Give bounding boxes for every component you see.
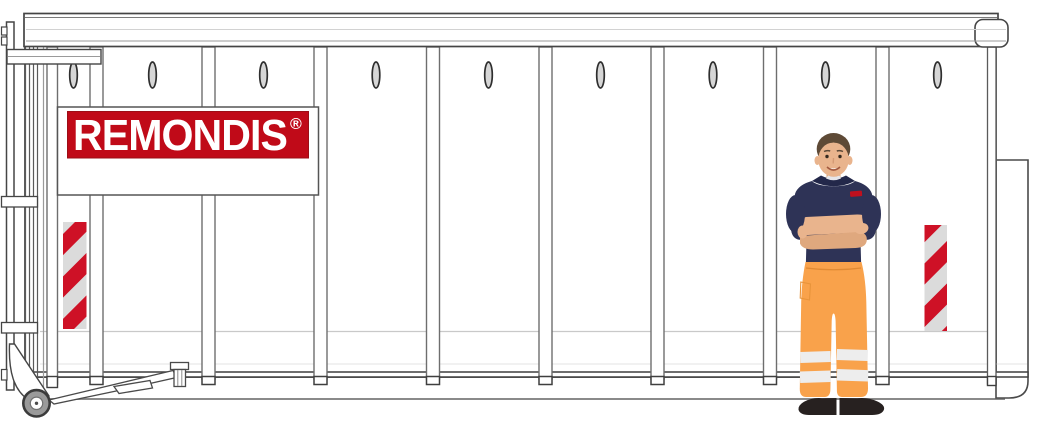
hook-bar-tab [2, 370, 8, 381]
corner-post-foot [47, 377, 58, 388]
wall-rib [651, 47, 664, 379]
reflective-stripe [837, 369, 869, 382]
vent-slot [934, 62, 942, 88]
vent-slot [822, 62, 830, 88]
worker-eye [825, 155, 828, 158]
remondis-logo-text: REMONDIS [73, 111, 287, 160]
wall-rib-foot [314, 377, 327, 385]
rear-door-box [996, 160, 1028, 398]
wall-rib-foot [651, 377, 664, 385]
reflective-stripe [837, 349, 868, 361]
hook-bar-tab [2, 27, 8, 35]
wall-rib [427, 47, 440, 379]
worker-chest-logo [850, 191, 862, 197]
lever-catch-cap [171, 363, 189, 370]
hook-bar-bracket [2, 323, 38, 334]
right-wall-post-foot [988, 377, 997, 386]
right-wall-post [988, 47, 997, 384]
lever-catch-body [174, 370, 186, 387]
vent-slot [485, 62, 493, 88]
wall-rib [539, 47, 552, 379]
vent-slot [709, 62, 717, 88]
worker-eye [838, 155, 841, 158]
wall-rib [764, 47, 777, 379]
vent-slot [372, 62, 380, 88]
warning-stripe-left [63, 222, 87, 329]
top-rail [24, 14, 1008, 48]
hook-bar-bracket [2, 197, 38, 208]
registered-mark: ® [290, 116, 302, 133]
vent-slot [70, 62, 78, 88]
worker-shoe-left [798, 398, 836, 415]
wall-rib [202, 47, 215, 379]
hook-bar-tab [2, 37, 8, 45]
wall-rib-foot [764, 377, 777, 385]
vent-slot [260, 62, 268, 88]
worker-eyebrow [824, 151, 830, 152]
roller-wheel-axle [35, 402, 38, 405]
illustration-canvas: REMONDIS ® [0, 0, 1038, 424]
reflective-stripe [800, 370, 831, 383]
wall-rib [314, 47, 327, 379]
worker-shoe-right [840, 398, 885, 415]
vent-slot [149, 62, 157, 88]
vent-slot [597, 62, 605, 88]
top-rail-end-cap [975, 20, 1008, 48]
wall-rib-foot [90, 377, 103, 385]
wall-rib [90, 47, 103, 379]
container-illustration: REMONDIS ® [0, 0, 1038, 424]
wall-rib-foot [427, 377, 440, 385]
corner-post [47, 47, 58, 384]
signboard: REMONDIS ® [58, 107, 319, 195]
wall-rib-foot [539, 377, 552, 385]
wall-rib-foot [876, 377, 889, 385]
worker-eyebrow [837, 151, 843, 152]
reflective-stripe [800, 351, 831, 363]
worker-hand [798, 226, 808, 239]
warning-stripe-right [925, 225, 948, 331]
wall-rib-foot [202, 377, 215, 385]
